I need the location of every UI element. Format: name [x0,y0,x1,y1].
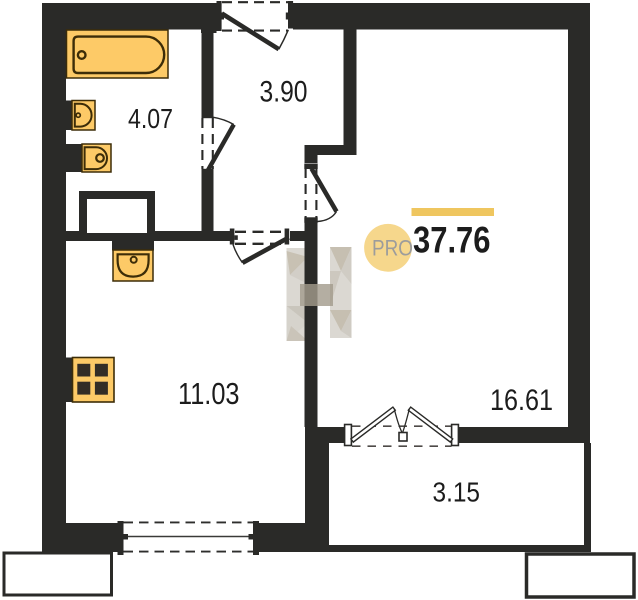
svg-text:37.76: 37.76 [413,218,491,260]
svg-text:PRO: PRO [372,235,413,260]
svg-text:11.03: 11.03 [178,377,240,411]
svg-text:16.61: 16.61 [490,384,553,417]
svg-text:3.15: 3.15 [433,477,481,508]
svg-text:4.07: 4.07 [128,103,173,134]
svg-text:3.90: 3.90 [260,76,308,109]
